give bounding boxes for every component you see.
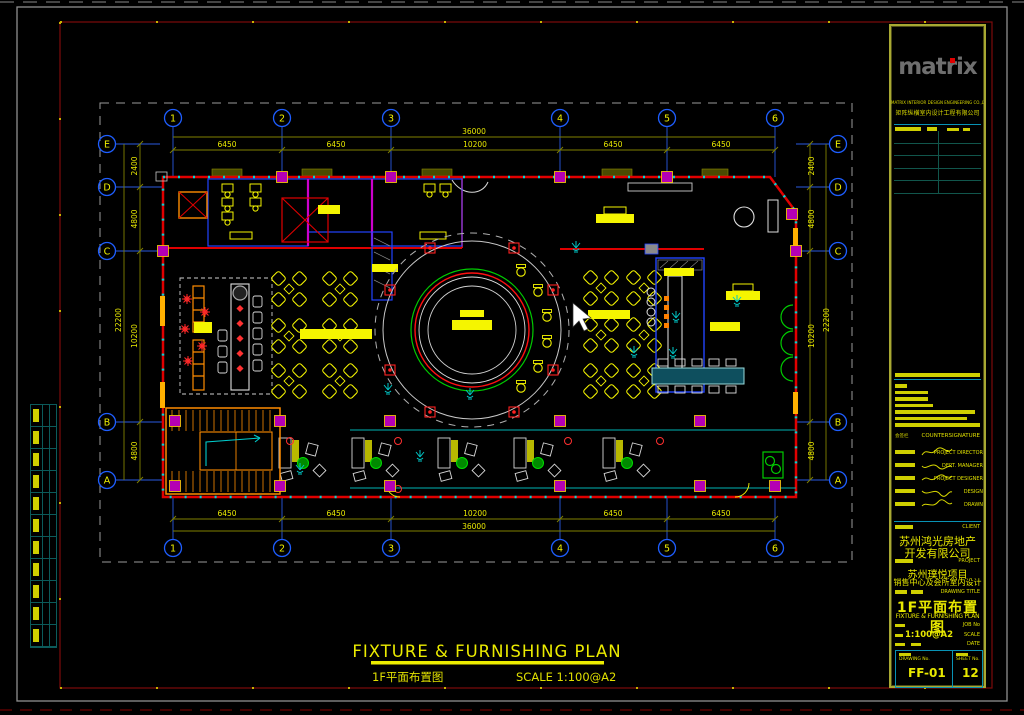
svg-text:4800: 4800	[807, 209, 816, 228]
svg-text:3: 3	[388, 544, 394, 555]
countersign-cn: 会签栏	[895, 433, 909, 439]
staircase	[166, 408, 280, 494]
signature-scribble	[922, 491, 952, 496]
office-band	[279, 430, 796, 497]
svg-text:C: C	[104, 247, 111, 258]
svg-text:4800: 4800	[807, 441, 816, 460]
company-name-cn: 矩阵纵横室内设计工程有限公司	[891, 108, 984, 117]
svg-text:10200: 10200	[130, 324, 139, 348]
project-name-line2: 销售中心及会所室内设计	[891, 577, 984, 588]
svg-text:6450: 6450	[217, 509, 236, 518]
svg-text:6450: 6450	[217, 140, 236, 149]
title-block: matrix MATRIX INTERIOR DESIGN ENGINEERIN…	[889, 24, 986, 688]
svg-text:B: B	[104, 418, 111, 429]
drawing-no-value: FF-01	[908, 666, 946, 680]
lineweight-bar	[895, 391, 928, 395]
cad-canvas[interactable]: 36000 6450 6450 10200 6450 6450 6450 645…	[0, 0, 1024, 715]
dim-bottom-total: 36000	[462, 522, 486, 531]
svg-text:6: 6	[772, 544, 778, 555]
field-block	[895, 525, 913, 529]
divider	[894, 379, 981, 380]
right-wall-doors	[763, 305, 793, 478]
signature-scribble	[922, 500, 952, 506]
svg-text:10200: 10200	[463, 509, 487, 518]
dim-top-total: 36000	[462, 127, 486, 136]
lineweight-bar	[895, 423, 980, 427]
sign-row: DRAWN	[894, 498, 984, 511]
field-block	[895, 590, 907, 594]
company-name-en: MATRIX INTERIOR DESIGN ENGINEERING CO.,L…	[891, 100, 984, 105]
field-block	[895, 624, 905, 627]
svg-text:6450: 6450	[711, 140, 730, 149]
plan-title-underline	[371, 661, 604, 665]
scale-value: 1:100@A2	[905, 630, 953, 640]
top-right-zone	[596, 183, 778, 331]
lineweight-bar	[895, 404, 933, 408]
field-block	[895, 634, 903, 637]
countersignature-label: COUNTERSIGNATURE	[922, 433, 980, 439]
svg-text:4: 4	[557, 544, 563, 555]
svg-text:2400: 2400	[130, 156, 139, 175]
lineweight-bar-full	[895, 373, 980, 377]
drawing-title-en: FIXTURE & FURNISHING PLAN	[891, 613, 984, 620]
divider	[894, 124, 981, 125]
svg-text:2400: 2400	[807, 156, 816, 175]
client-label: CLIENT	[962, 524, 980, 530]
divider	[894, 521, 981, 522]
lineweight-bar	[895, 410, 975, 414]
mouse-cursor	[573, 303, 591, 331]
svg-text:10200: 10200	[463, 140, 487, 149]
sign-row: DESIGN	[894, 485, 984, 498]
sign-row: DEPT. MANAGER	[894, 459, 984, 472]
svg-text:B: B	[835, 418, 842, 429]
right-dining	[583, 270, 663, 400]
svg-text:4: 4	[557, 114, 563, 125]
plan-caption: FIXTURE & FURNISHING PLAN 1F平面布置图 SCALE …	[352, 642, 621, 684]
sign-row: PROJECT DESIGNER	[894, 472, 984, 485]
scale-label: SCALE	[964, 632, 980, 638]
matrix-logo: matrix	[891, 54, 984, 80]
revision-table	[894, 131, 981, 193]
svg-text:3: 3	[388, 114, 394, 125]
lineweight-bar	[895, 417, 967, 421]
field-block	[895, 559, 913, 563]
rotunda	[375, 233, 569, 427]
dim-right-total: 22200	[822, 308, 831, 332]
plan-subtitle-cn: 1F平面布置图	[372, 670, 443, 684]
svg-text:A: A	[104, 476, 111, 487]
drawing-title-label: DRAWING TITLE	[941, 589, 980, 595]
svg-text:6450: 6450	[603, 140, 622, 149]
columns	[158, 172, 802, 492]
toilet-block	[179, 179, 462, 246]
cad-viewport[interactable]: 36000 6450 6450 10200 6450 6450 6450 645…	[0, 0, 1024, 715]
project-label: PROJECT	[958, 558, 980, 564]
floor-plan	[156, 169, 802, 497]
svg-text:6450: 6450	[326, 509, 345, 518]
svg-text:6: 6	[772, 114, 778, 125]
svg-text:6450: 6450	[603, 509, 622, 518]
svg-text:6450: 6450	[711, 509, 730, 518]
lineweight-bar	[895, 384, 907, 388]
dim-left-total: 22200	[114, 308, 123, 332]
svg-text:1: 1	[170, 114, 176, 125]
svg-text:2: 2	[279, 544, 285, 555]
date-label: DATE	[967, 641, 980, 647]
field-block	[911, 643, 921, 646]
svg-text:1: 1	[170, 544, 176, 555]
plan-scale-text: SCALE 1:100@A2	[516, 670, 616, 684]
dining-area	[180, 232, 398, 399]
svg-text:5: 5	[664, 544, 670, 555]
sheet-no-label: SHEET No.	[956, 657, 980, 662]
svg-text:5: 5	[664, 114, 670, 125]
sheet-border	[0, 2, 1024, 710]
svg-text:D: D	[103, 183, 110, 194]
svg-text:10200: 10200	[807, 324, 816, 348]
svg-text:A: A	[835, 476, 842, 487]
svg-text:4800: 4800	[130, 441, 139, 460]
left-revision-strip	[30, 404, 57, 648]
svg-text:C: C	[835, 247, 842, 258]
job-no-label: JOB No	[963, 622, 980, 628]
meeting-table	[652, 359, 744, 393]
svg-text:4800: 4800	[130, 209, 139, 228]
field-block	[895, 643, 905, 646]
plan-title-text: FIXTURE & FURNISHING PLAN	[352, 642, 621, 661]
svg-text:2: 2	[279, 114, 285, 125]
grid-lines	[116, 127, 829, 539]
sheet-no-value: 12	[962, 666, 979, 680]
svg-text:D: D	[834, 183, 841, 194]
field-block	[911, 590, 923, 594]
svg-text:E: E	[104, 140, 110, 151]
sign-row: PROJECT DIRECTOR	[894, 446, 984, 459]
svg-text:6450: 6450	[326, 140, 345, 149]
drawing-no-label: DRAWING No.	[899, 657, 930, 662]
drawing-number-box: DRAWING No. FF-01 SHEET No. 12	[895, 650, 983, 688]
svg-text:E: E	[835, 140, 841, 151]
lineweight-bar	[895, 397, 928, 401]
logo-red-dot	[950, 58, 955, 63]
